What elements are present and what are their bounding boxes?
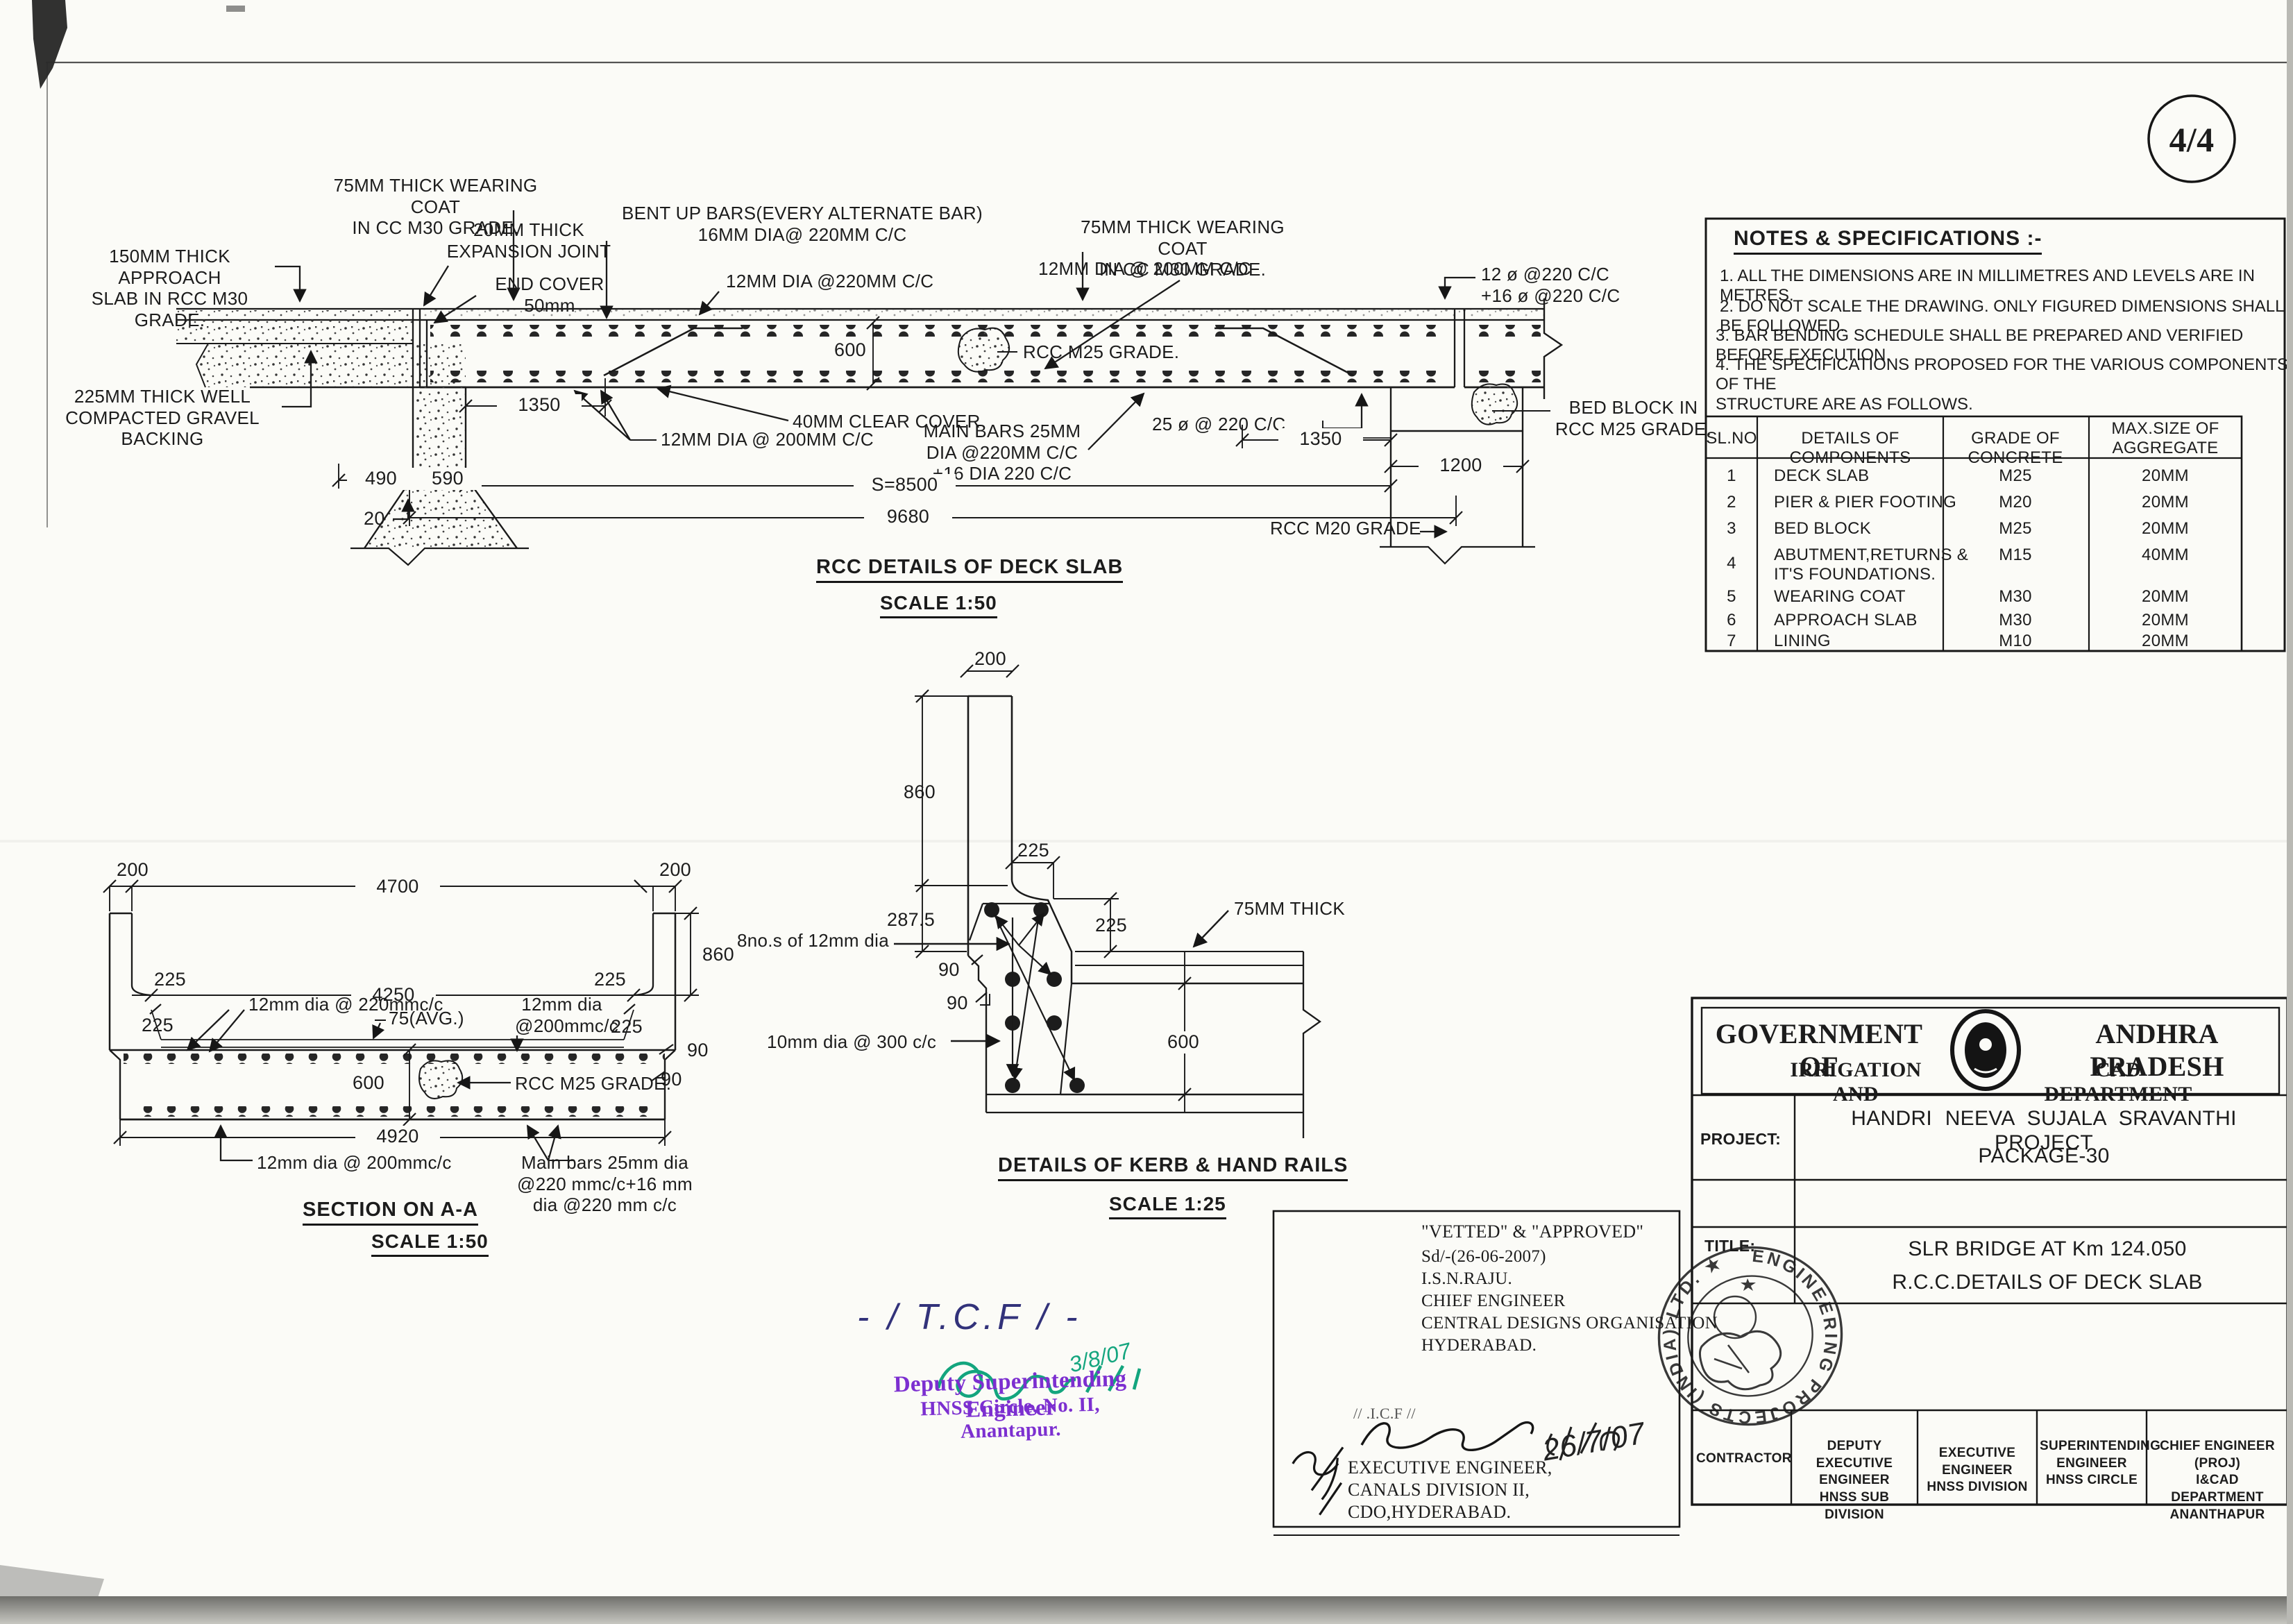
aa-dim-4920: 4920 xyxy=(355,1126,440,1148)
dim-1350-right: 1350 xyxy=(1278,428,1363,450)
table-cell: 4 xyxy=(1706,554,1757,573)
vetted-line2: Sd/-(26-06-2007) xyxy=(1421,1246,1546,1267)
dim-1350-left: 1350 xyxy=(497,394,582,416)
dim-s8500: S=8500 xyxy=(854,474,956,496)
kerb-dim-225-right: 225 xyxy=(1095,915,1127,937)
table-cell: WEARING COAT xyxy=(1774,587,1906,607)
vetted-line6: HYDERABAD. xyxy=(1421,1335,1537,1356)
table-cell: 3 xyxy=(1706,519,1757,539)
table-cell: 1 xyxy=(1706,466,1757,486)
dim-590: 590 xyxy=(414,468,482,490)
table-cell: LINING xyxy=(1774,632,1831,651)
table-cell: DECK SLAB xyxy=(1774,466,1869,486)
table-cell: 20MM xyxy=(2090,493,2240,512)
table-cell: 6 xyxy=(1706,611,1757,630)
vetted-line3: I.S.N.RAJU. xyxy=(1421,1269,1512,1289)
table-cell: M30 xyxy=(1945,587,2086,607)
dim-600-deck: 600 xyxy=(818,339,866,362)
tb-irrigation-and: IRRIGATION AND xyxy=(1775,1058,1936,1107)
purple-stamp-line2: HNSS Circle, No. II, Anantapur. xyxy=(896,1392,1125,1446)
state-emblem-icon xyxy=(1952,1011,2019,1089)
tb-signatory-dee: DEPUTY EXECUTIVE ENGINEER HNSS SUB DIVIS… xyxy=(1794,1438,1915,1523)
label-bed-block: BED BLOCK IN RCC M25 GRADE. xyxy=(1552,397,1715,439)
label-bent-up-bars: BENT UP BARS(EVERY ALTERNATE BAR) 16MM D… xyxy=(612,203,992,245)
aa-label-12dia-200: 12mm dia @200mmc/c xyxy=(515,994,609,1036)
kerb-dim-90b: 90 xyxy=(947,992,968,1015)
table-cell: BED BLOCK xyxy=(1774,519,1871,539)
aa-dim-4700: 4700 xyxy=(355,876,440,898)
company-stamp: ENGINEERING PROJECTS (INDIA) LTD. ★ xyxy=(1636,1224,1865,1448)
table-cell: M25 xyxy=(1945,466,2086,486)
spec-col-details: DETAILS OF COMPONENTS xyxy=(1761,429,1939,468)
right-scan-edge xyxy=(2287,0,2293,1624)
tb-cad-department: CAD DEPARTMENT xyxy=(2031,1058,2206,1107)
label-12dia-220: 12MM DIA @220MM C/C xyxy=(726,271,933,292)
tb-project-line2: PACKAGE-30 xyxy=(1804,1144,2283,1168)
spec-col-max: MAX.SIZE OF AGGREGATE xyxy=(2090,419,2240,459)
tb-title-label: TITLE: xyxy=(1704,1237,1755,1255)
dim-9680: 9680 xyxy=(864,506,952,528)
tcf-handwritten: - / T.C.F / - xyxy=(857,1296,1082,1339)
table-cell: M20 xyxy=(1945,493,2086,512)
sheet-number: 4/4 xyxy=(2160,119,2224,160)
table-cell: 20MM xyxy=(2090,519,2240,539)
aa-dim-860: 860 xyxy=(702,944,734,966)
kerb-label-10dia: 10mm dia @ 300 c/c xyxy=(767,1031,936,1053)
aa-dim-200-right: 200 xyxy=(659,859,691,881)
notes-heading: NOTES & SPECIFICATIONS :- xyxy=(1734,226,2042,255)
aa-scale: SCALE 1:50 xyxy=(371,1230,489,1257)
kerb-dim-600: 600 xyxy=(1165,1031,1202,1054)
table-cell: M10 xyxy=(1945,632,2086,651)
label-12dia-200-right: 12MM DIA @ 200MM C/C xyxy=(1038,258,1251,280)
aa-dim-225-right: 225 xyxy=(611,1016,643,1038)
kerb-dim-90a: 90 xyxy=(938,959,960,981)
vetted-ee1: EXECUTIVE ENGINEER, xyxy=(1348,1457,1552,1479)
deck-scale: SCALE 1:50 xyxy=(880,591,997,618)
dim-1200: 1200 xyxy=(1419,455,1503,477)
kerb-scale: SCALE 1:25 xyxy=(1109,1192,1226,1219)
tb-signatory-ee: EXECUTIVE ENGINEER HNSS DIVISION xyxy=(1920,1445,2034,1496)
aa-label-main-bars: Main bars 25mm dia @220 mmc/c+16 mm dia … xyxy=(509,1152,700,1216)
kerb-label-8nos: 8no.s of 12mm dia xyxy=(737,930,889,951)
tb-project-label: PROJECT: xyxy=(1700,1130,1781,1149)
aa-dim-225-topleft: 225 xyxy=(154,969,186,991)
label-rcc-m20: RCC M20 GRADE xyxy=(1270,518,1421,539)
bottom-scan-band xyxy=(0,1596,2293,1624)
kerb-dim-287: 287.5 xyxy=(887,909,935,931)
tb-signatory-contractor: CONTRACTOR xyxy=(1696,1450,1789,1468)
aa-label-rcc-m25: RCC M25 GRADE. xyxy=(515,1073,671,1094)
table-cell: M15 xyxy=(1945,545,2086,565)
aa-title: SECTION ON A-A xyxy=(303,1198,478,1226)
aa-label-12dia-200-bottom: 12mm dia @ 200mmc/c xyxy=(257,1152,452,1174)
aa-dim-200-left: 200 xyxy=(117,859,149,881)
label-end-cover: END COVER 50mm xyxy=(480,273,619,316)
vetted-line1: "VETTED" & "APPROVED" xyxy=(1421,1221,1643,1243)
table-cell: 20MM xyxy=(2090,611,2240,630)
label-gravel-backing: 225MM THICK WELL COMPACTED GRAVEL BACKIN… xyxy=(42,386,283,450)
label-approach-slab: 150MM THICK APPROACH SLAB IN RCC M30 GRA… xyxy=(64,246,276,331)
table-cell: 20MM xyxy=(2090,632,2240,651)
vetted-line4: CHIEF ENGINEER xyxy=(1421,1291,1566,1312)
table-cell: M25 xyxy=(1945,519,2086,539)
note-item-4: 4. THE SPECIFICATIONS PROPOSED FOR THE V… xyxy=(1716,355,2293,414)
dim-490: 490 xyxy=(347,468,415,490)
label-rcc-m25-deck: RCC M25 GRADE. xyxy=(1023,341,1179,363)
spec-col-grade: GRADE OF CONCRETE xyxy=(1945,429,2086,468)
label-12dia-200-bottom: 12MM DIA @ 200MM C/C xyxy=(661,429,874,450)
tb-title-line1: SLR BRIDGE AT Km 124.050 xyxy=(1832,1237,2262,1261)
vetted-ee3: CDO,HYDERABAD. xyxy=(1348,1502,1511,1523)
aa-dim-90a: 90 xyxy=(687,1040,709,1062)
table-cell: 40MM xyxy=(2090,545,2240,565)
aa-dim-225-topright: 225 xyxy=(594,969,626,991)
tb-signatory-se: SUPERINTENDING ENGINEER HNSS CIRCLE xyxy=(2040,1438,2144,1489)
label-25-bars: 25 ø @ 220 C/C xyxy=(1152,414,1285,435)
aa-dim-225-left: 225 xyxy=(142,1015,174,1037)
label-expansion-joint: 20MM THICK EXPANSION JOINT xyxy=(446,219,612,262)
deck-title: RCC DETAILS OF DECK SLAB xyxy=(816,555,1123,583)
aa-label-75avg: 75(AVG.) xyxy=(389,1008,464,1029)
spec-col-slno: SL.NO xyxy=(1706,429,1757,448)
vetted-line5: CENTRAL DESIGNS ORGANISATION xyxy=(1421,1313,1718,1334)
tb-signatory-ce: CHIEF ENGINEER (PROJ) I&CAD DEPARTMENT A… xyxy=(2149,1438,2285,1523)
table-cell: 20MM xyxy=(2090,466,2240,486)
vetted-ee2: CANALS DIVISION II, xyxy=(1348,1480,1530,1501)
vetted-icf: // .I.C.F // xyxy=(1353,1405,1416,1423)
aa-dim-600: 600 xyxy=(353,1072,384,1094)
kerb-dim-860: 860 xyxy=(904,781,936,804)
kerb-dim-200: 200 xyxy=(967,648,1013,670)
table-cell: 5 xyxy=(1706,587,1757,607)
tb-title-line2: R.C.C.DETAILS OF DECK SLAB xyxy=(1832,1270,2262,1294)
kerb-label-75mm: 75MM THICK xyxy=(1234,898,1345,920)
table-cell: M30 xyxy=(1945,611,2086,630)
table-cell: 7 xyxy=(1706,632,1757,651)
table-cell: ABUTMENT,RETURNS & IT'S FOUNDATIONS. xyxy=(1774,545,1968,585)
paper-crease xyxy=(0,840,2293,843)
kerb-dim-225-top: 225 xyxy=(1010,840,1056,862)
table-cell: APPROACH SLAB xyxy=(1774,611,1918,630)
dim-20: 20 xyxy=(364,508,385,530)
table-cell: PIER & PIER FOOTING xyxy=(1774,493,1956,512)
table-cell: 2 xyxy=(1706,493,1757,512)
table-cell: 20MM xyxy=(2090,587,2240,607)
label-12-16-bars: 12 ø @220 C/C +16 ø @220 C/C xyxy=(1481,264,1620,306)
kerb-title: DETAILS OF KERB & HAND RAILS xyxy=(998,1153,1348,1181)
